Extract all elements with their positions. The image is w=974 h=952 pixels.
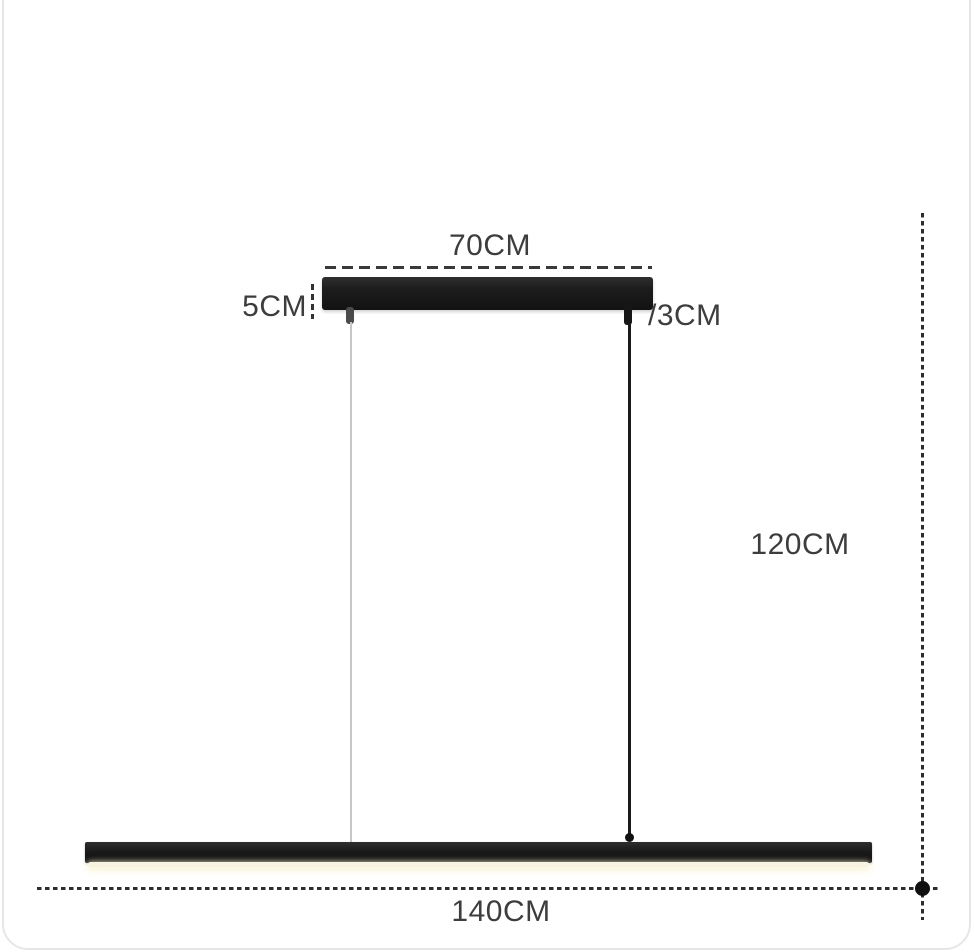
linear-light-bar [85,842,872,863]
right-suspension-cord [628,323,631,841]
bar-length-dimension-line [37,887,941,890]
product-image-card [2,0,971,950]
bar-length-label: 140CM [448,897,554,927]
product-dimension-diagram: 70CM 5CM /3CM 120CM 140CM [0,0,974,952]
drop-height-label: 120CM [750,530,850,560]
canopy-width-label: 70CM [444,231,536,261]
drop-height-dimension-line [921,213,924,920]
cord-end-connector [625,833,634,842]
canopy-height-tick-line [311,284,314,319]
right-wire-grip [624,304,632,325]
left-suspension-wire [350,322,352,843]
canopy-height-label: 5CM [239,292,307,322]
dimension-intersection-dot [915,881,930,896]
ceiling-canopy-bar [322,277,653,310]
canopy-width-dimension-line [325,266,652,269]
led-light-strip-glow [88,862,869,867]
cord-size-label: /3CM [648,301,738,331]
